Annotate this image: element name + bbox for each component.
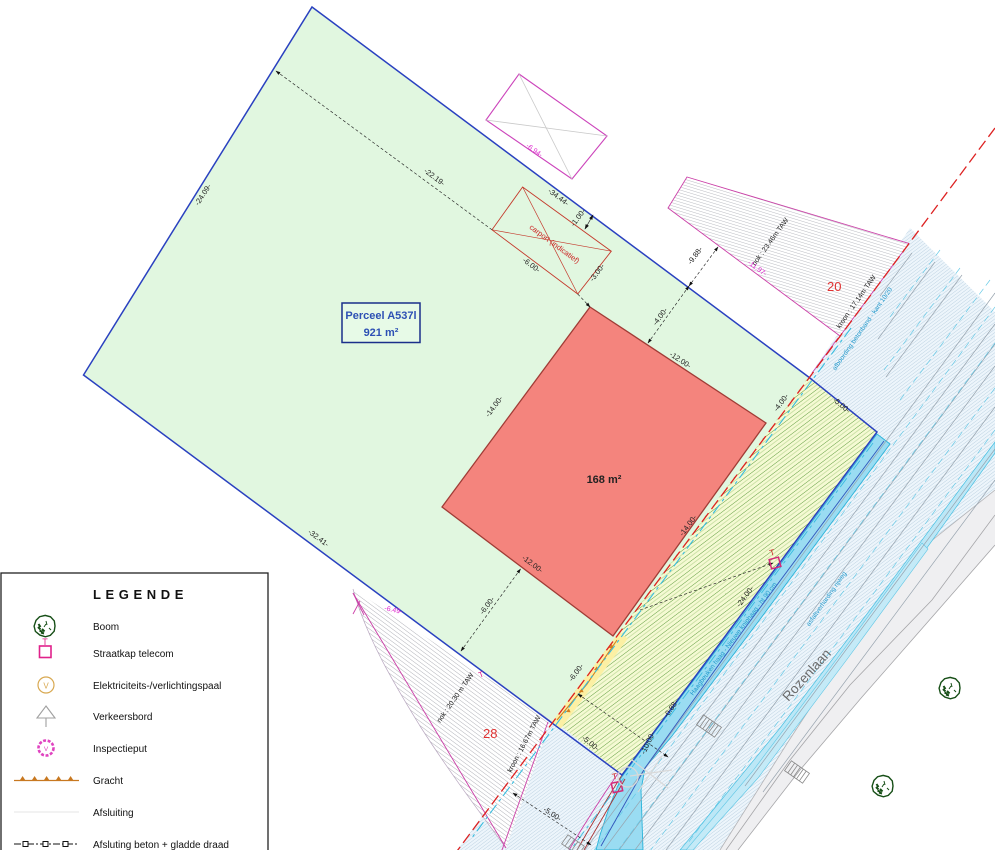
svg-text:20: 20: [827, 279, 841, 294]
svg-text:921 m²: 921 m²: [364, 327, 399, 339]
svg-text:Afsluiting: Afsluiting: [93, 808, 134, 819]
svg-text:Straatkap telecom: Straatkap telecom: [93, 649, 174, 660]
svg-text:168 m²: 168 m²: [587, 474, 622, 486]
svg-text:Gracht: Gracht: [93, 776, 123, 787]
svg-text:Afsluting beton + gladde draad: Afsluting beton + gladde draad: [93, 840, 229, 850]
svg-text:Elektriciteits-/verlichtingspa: Elektriciteits-/verlichtingspaal: [93, 681, 221, 692]
svg-text:V: V: [43, 682, 49, 691]
svg-text:28: 28: [483, 726, 497, 741]
svg-text:Perceel A537l: Perceel A537l: [345, 310, 416, 322]
svg-text:LEGENDE: LEGENDE: [93, 587, 188, 602]
svg-text:Inspectieput: Inspectieput: [93, 744, 147, 755]
svg-text:V: V: [44, 746, 49, 753]
svg-text:Boom: Boom: [93, 622, 119, 633]
svg-text:Verkeersbord: Verkeersbord: [93, 712, 152, 723]
svg-text:-9.88-: -9.88-: [686, 245, 705, 267]
